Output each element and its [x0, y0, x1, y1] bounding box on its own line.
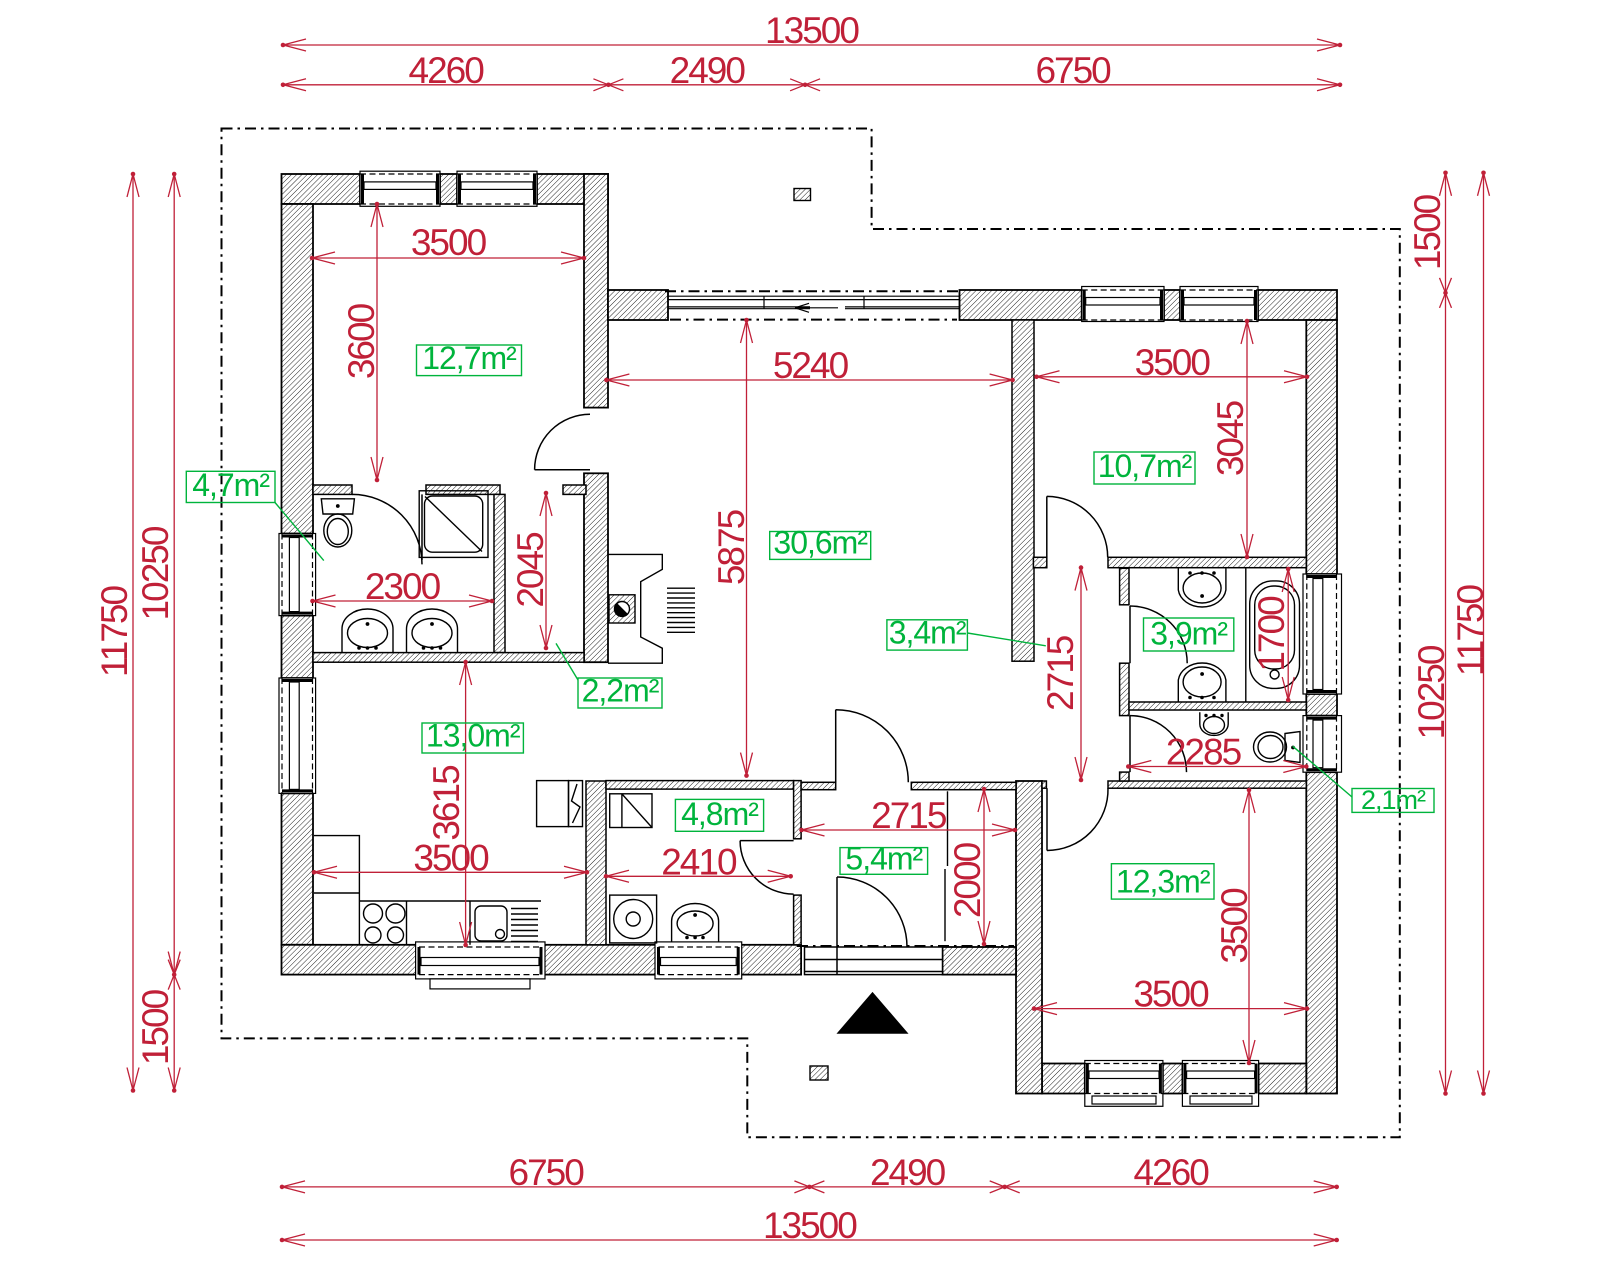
svg-text:10250: 10250: [135, 526, 176, 620]
svg-text:3500: 3500: [413, 837, 489, 878]
svg-text:4260: 4260: [409, 50, 485, 91]
svg-text:3500: 3500: [1133, 974, 1209, 1015]
svg-text:10250: 10250: [1411, 645, 1452, 739]
svg-text:2410: 2410: [661, 841, 737, 882]
svg-text:2715: 2715: [871, 795, 947, 836]
svg-text:13500: 13500: [765, 10, 859, 51]
svg-text:4,7m²: 4,7m²: [192, 467, 270, 503]
svg-text:5875: 5875: [711, 509, 752, 585]
svg-text:2490: 2490: [870, 1152, 946, 1193]
svg-text:2490: 2490: [670, 50, 746, 91]
svg-text:1500: 1500: [1407, 194, 1448, 270]
svg-text:5240: 5240: [773, 345, 849, 386]
svg-text:3,9m²: 3,9m²: [1150, 616, 1228, 652]
svg-text:4260: 4260: [1134, 1152, 1210, 1193]
svg-text:2045: 2045: [510, 532, 551, 608]
svg-text:2285: 2285: [1166, 732, 1242, 773]
svg-text:3,4m²: 3,4m²: [889, 615, 967, 651]
svg-text:6750: 6750: [509, 1152, 585, 1193]
svg-text:3045: 3045: [1210, 400, 1251, 476]
svg-text:11750: 11750: [1450, 585, 1491, 677]
svg-text:3600: 3600: [341, 303, 382, 379]
svg-text:3500: 3500: [1135, 342, 1211, 383]
svg-text:6750: 6750: [1035, 50, 1111, 91]
svg-text:1500: 1500: [135, 989, 176, 1065]
svg-text:13,0m²: 13,0m²: [426, 718, 521, 754]
svg-text:11750: 11750: [94, 586, 135, 678]
svg-text:4,8m²: 4,8m²: [681, 796, 759, 832]
svg-text:10,7m²: 10,7m²: [1098, 448, 1193, 484]
svg-text:2715: 2715: [1040, 635, 1081, 711]
svg-text:12,3m²: 12,3m²: [1116, 864, 1211, 900]
svg-text:3500: 3500: [411, 222, 487, 263]
svg-text:2,2m²: 2,2m²: [582, 673, 660, 709]
svg-text:5,4m²: 5,4m²: [845, 841, 923, 877]
svg-text:13500: 13500: [763, 1205, 857, 1246]
svg-text:2,1m²: 2,1m²: [1361, 785, 1426, 815]
svg-text:3500: 3500: [1214, 888, 1255, 964]
svg-text:2300: 2300: [365, 566, 441, 607]
svg-text:1700: 1700: [1251, 596, 1292, 672]
svg-text:2000: 2000: [947, 842, 988, 918]
svg-text:30,6m²: 30,6m²: [773, 524, 868, 560]
svg-text:12,7m²: 12,7m²: [422, 340, 517, 376]
svg-text:3615: 3615: [426, 765, 467, 841]
